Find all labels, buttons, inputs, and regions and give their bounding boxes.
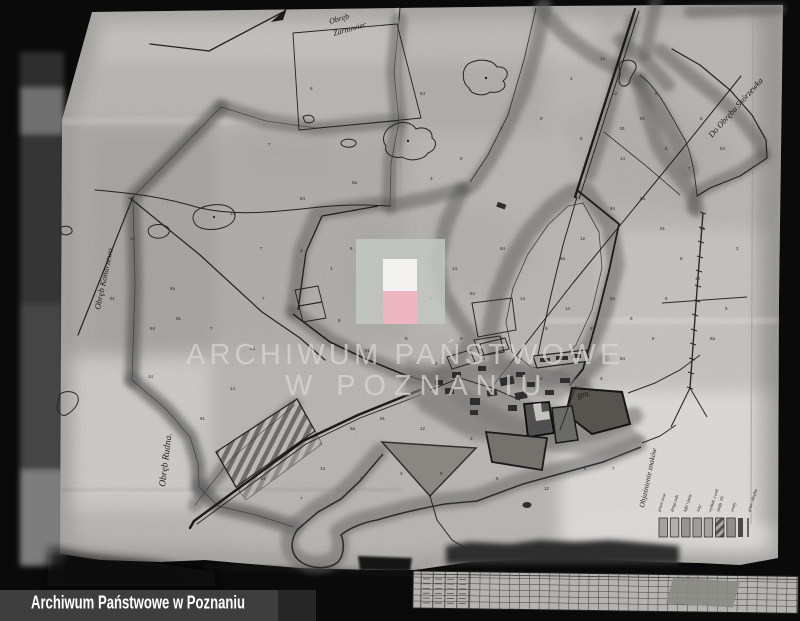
svg-text:12: 12 bbox=[420, 426, 426, 431]
svg-text:8a: 8a bbox=[640, 196, 646, 201]
svg-text:84: 84 bbox=[150, 326, 156, 331]
svg-text:14: 14 bbox=[320, 466, 326, 471]
svg-text:Archiwum Państwowe w Poznaniu: Archiwum Państwowe w Poznaniu bbox=[31, 593, 245, 613]
svg-text:8a: 8a bbox=[170, 286, 176, 291]
svg-text:14: 14 bbox=[620, 156, 626, 161]
svg-text:91: 91 bbox=[110, 296, 116, 301]
svg-text:84: 84 bbox=[720, 146, 726, 151]
svg-text:84: 84 bbox=[610, 206, 616, 211]
svg-text:91: 91 bbox=[620, 126, 626, 131]
svg-text:84: 84 bbox=[300, 196, 306, 201]
svg-text:14: 14 bbox=[520, 296, 526, 301]
svg-text:84: 84 bbox=[500, 246, 506, 251]
svg-text:14: 14 bbox=[565, 306, 571, 311]
svg-text:12: 12 bbox=[600, 56, 606, 61]
svg-text:14: 14 bbox=[260, 476, 266, 481]
svg-text:84: 84 bbox=[470, 291, 476, 296]
svg-text:14: 14 bbox=[230, 211, 236, 216]
svg-text:91: 91 bbox=[640, 116, 646, 121]
svg-text:8a: 8a bbox=[710, 336, 716, 341]
svg-text:91: 91 bbox=[176, 316, 182, 321]
svg-text:91: 91 bbox=[590, 326, 596, 331]
svg-text:ARCHIWUM PAŃSTWOWE: ARCHIWUM PAŃSTWOWE bbox=[186, 338, 624, 371]
svg-text:14: 14 bbox=[148, 374, 154, 379]
svg-text:14: 14 bbox=[452, 266, 458, 271]
svg-text:W POZNANIU: W POZNANIU bbox=[285, 370, 549, 402]
svg-text:91: 91 bbox=[200, 416, 206, 421]
svg-text:14: 14 bbox=[130, 236, 136, 241]
svg-text:84: 84 bbox=[610, 296, 616, 301]
svg-text:84: 84 bbox=[420, 91, 426, 96]
svg-text:14: 14 bbox=[695, 276, 701, 281]
svg-text:91: 91 bbox=[380, 416, 386, 421]
svg-text:8a: 8a bbox=[560, 256, 566, 261]
svg-text:8a: 8a bbox=[350, 426, 356, 431]
svg-text:12: 12 bbox=[580, 236, 586, 241]
svg-text:91: 91 bbox=[660, 226, 666, 231]
svg-text:91: 91 bbox=[700, 226, 706, 231]
svg-text:8a: 8a bbox=[352, 180, 358, 185]
svg-text:14: 14 bbox=[230, 386, 236, 391]
svg-text:12: 12 bbox=[612, 91, 618, 96]
svg-text:12: 12 bbox=[544, 486, 550, 491]
